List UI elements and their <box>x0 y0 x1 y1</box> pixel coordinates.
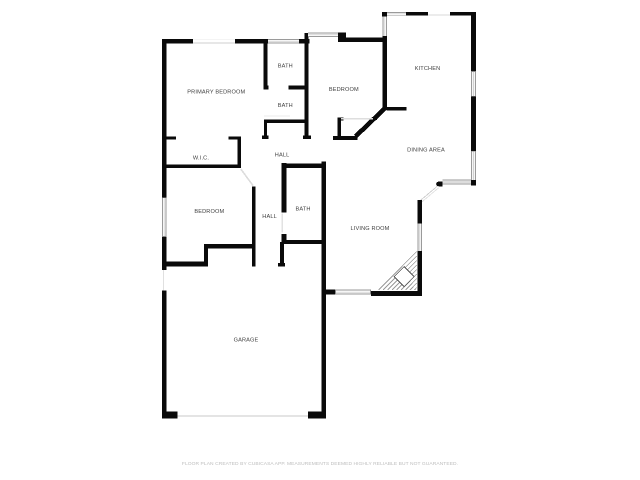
svg-text:GARAGE: GARAGE <box>234 338 259 344</box>
svg-text:W.I.C.: W.I.C. <box>193 155 209 161</box>
svg-text:DINING AREA: DINING AREA <box>407 147 445 153</box>
svg-text:KITCHEN: KITCHEN <box>415 66 441 72</box>
svg-text:HALL: HALL <box>275 153 290 159</box>
svg-text:BATH: BATH <box>278 103 293 109</box>
svg-text:PRIMARY BEDROOM: PRIMARY BEDROOM <box>187 89 245 95</box>
svg-text:BEDROOM: BEDROOM <box>329 87 359 93</box>
svg-text:BATH: BATH <box>295 206 310 212</box>
svg-text:FLOOR PLAN CREATED BY CUBICASA: FLOOR PLAN CREATED BY CUBICASA APP. MEAS… <box>182 461 458 467</box>
svg-text:LIVING ROOM: LIVING ROOM <box>351 226 390 232</box>
svg-text:BEDROOM: BEDROOM <box>194 209 224 215</box>
svg-text:BATH: BATH <box>278 64 293 70</box>
svg-text:HALL: HALL <box>262 214 277 220</box>
